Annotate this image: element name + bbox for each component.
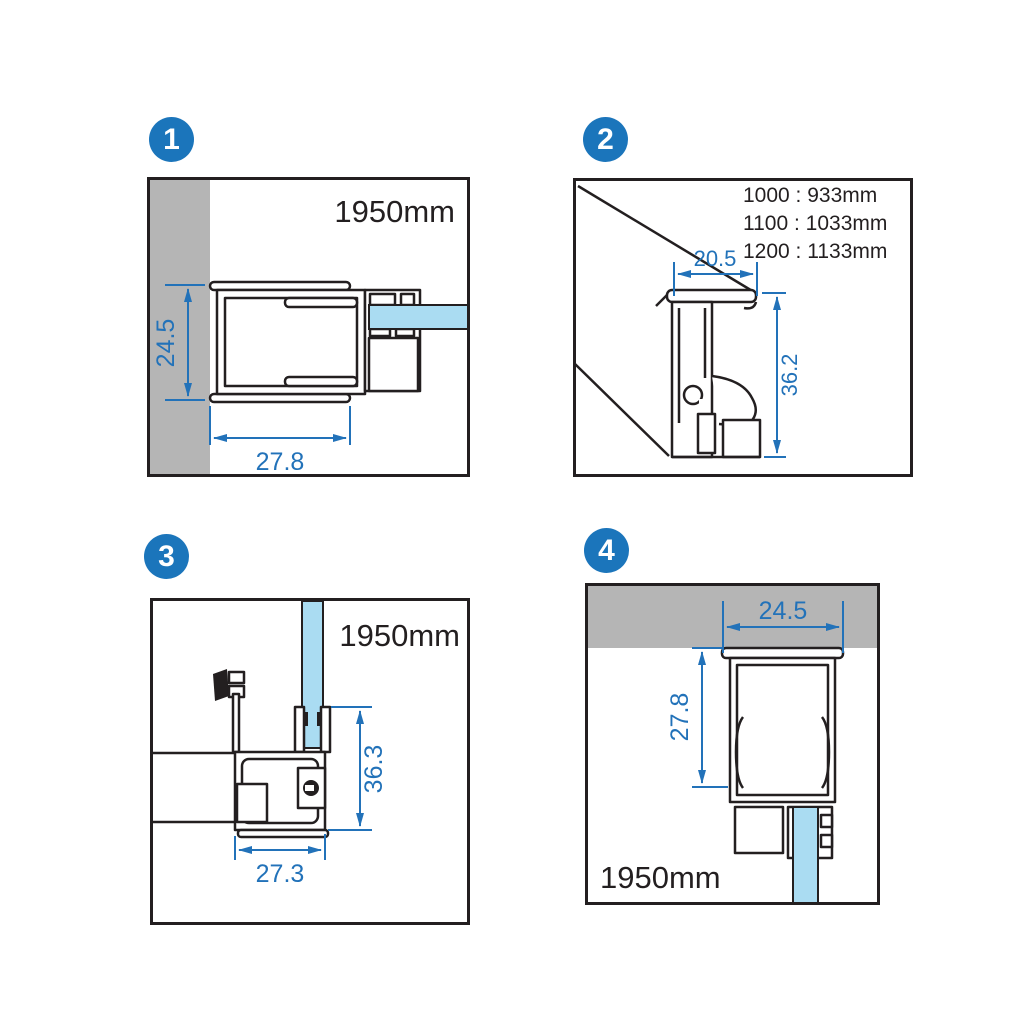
bracket-pad [213, 669, 229, 701]
dim-label-top: 20.5 [694, 246, 737, 271]
panel-2-badge: 2 [583, 117, 628, 162]
seal-strip [317, 712, 321, 726]
dim-label-horizontal: 27.8 [256, 448, 305, 476]
ceiling-shading [588, 586, 877, 648]
clamp-notch [821, 835, 832, 847]
clamp-notch [821, 815, 832, 827]
panel-4-drawing: 24.5 27.8 1950mm [585, 583, 880, 905]
profile-diagram-sheet: 1 2 3 4 [0, 0, 1024, 1024]
dim-label-vertical: 24.5 [152, 319, 180, 368]
dimension-27-3: 27.3 [235, 834, 325, 888]
dim-label-bottom: 27.3 [256, 860, 305, 888]
ratio-row-3: 1200 : 1133mm [743, 240, 887, 263]
dim-label-side: 27.8 [666, 693, 694, 742]
glass-panel [369, 305, 469, 329]
dimension-36-2: 36.2 [762, 293, 802, 457]
ratio-row-1: 1000 : 933mm [743, 184, 877, 207]
tray-lines [153, 753, 235, 822]
height-label: 1950mm [339, 618, 460, 653]
dimension-36-3: 36.3 [328, 707, 388, 830]
panel-1-drawing: 24.5 27.8 1950mm [147, 177, 470, 477]
dim-label-side: 36.3 [360, 745, 388, 794]
glass-panel [793, 807, 818, 903]
dim-label-top: 24.5 [759, 597, 808, 625]
size-ratio-table: 1000 : 933mm 1100 : 1033mm 1200 : 1133mm [743, 184, 887, 263]
panel-1-badge: 1 [149, 117, 194, 162]
dimension-27-8: 27.8 [210, 406, 350, 476]
panel-3-badge: 3 [144, 534, 189, 579]
wall-profile-section [210, 282, 420, 402]
wall-bracket [213, 669, 244, 752]
panel-2-drawing: 20.5 36.2 1000 : 933mm 1100 : 1033mm 120… [573, 178, 913, 477]
seal-strip [304, 712, 308, 726]
panel-4-badge: 4 [584, 528, 629, 573]
dimension-27-8: 27.8 [666, 648, 728, 787]
dim-label-side: 36.2 [777, 354, 802, 397]
height-label: 1950mm [334, 194, 455, 229]
panel-3-drawing: 36.3 27.3 1950mm [150, 598, 470, 925]
height-label: 1950mm [600, 860, 721, 895]
ratio-row-2: 1100 : 1033mm [743, 212, 887, 235]
top-rail-section [656, 290, 760, 457]
